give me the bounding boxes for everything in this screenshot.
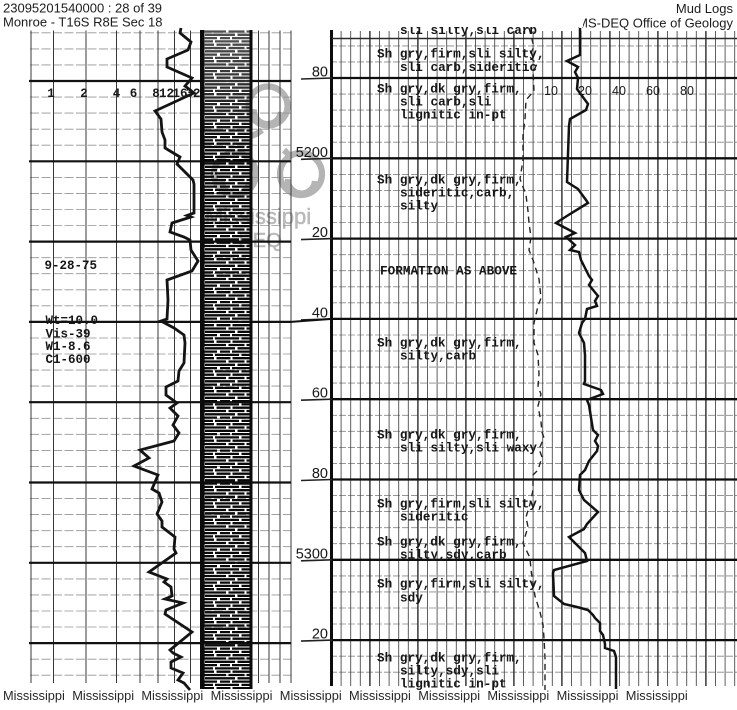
svg-text:6: 6	[130, 87, 138, 101]
svg-text:40: 40	[312, 305, 328, 321]
svg-text:32: 32	[185, 87, 200, 101]
svg-text:80: 80	[312, 65, 328, 81]
svg-text:Mississippi: Mississippi	[280, 688, 342, 703]
svg-text:Mississippi: Mississippi	[72, 688, 134, 703]
svg-text:Mississippi: Mississippi	[626, 688, 688, 703]
svg-text:Mississippi: Mississippi	[211, 688, 273, 703]
svg-text:sli silty,sli waxy: sli silty,sli waxy	[400, 441, 537, 456]
svg-text:40: 40	[612, 84, 626, 98]
svg-text:60: 60	[646, 84, 660, 98]
svg-text:23095201540000 : 28 of 39: 23095201540000 : 28 of 39	[3, 1, 162, 16]
svg-text:sli carb,sideritic: sli carb,sideritic	[400, 60, 537, 75]
svg-text:Mississippi: Mississippi	[557, 688, 619, 703]
svg-text:60: 60	[312, 386, 328, 402]
svg-text:Monroe - T16S R8E Sec 18: Monroe - T16S R8E Sec 18	[3, 15, 162, 30]
svg-text:Mississippi: Mississippi	[418, 688, 480, 703]
svg-text:80: 80	[680, 84, 694, 98]
svg-text:Mississippi: Mississippi	[349, 688, 411, 703]
svg-text:80: 80	[312, 466, 328, 482]
svg-text:20: 20	[312, 225, 328, 241]
svg-text:10: 10	[544, 84, 558, 98]
svg-text:lignitic in-pt: lignitic in-pt	[400, 108, 507, 123]
svg-text:FORMATION AS ABOVE: FORMATION AS ABOVE	[380, 264, 517, 279]
svg-text:sideritic: sideritic	[400, 510, 469, 525]
svg-text:9-28-75: 9-28-75	[45, 259, 98, 273]
svg-text:Mud Logs: Mud Logs	[676, 1, 734, 16]
svg-text:silty,carb: silty,carb	[400, 349, 477, 364]
svg-text:C1-600: C1-600	[46, 353, 91, 367]
svg-text:Mississippi: Mississippi	[141, 688, 203, 703]
svg-text:20: 20	[312, 627, 328, 643]
svg-text:Mississippi: Mississippi	[487, 688, 549, 703]
svg-text:20: 20	[578, 84, 592, 98]
svg-text:silty: silty	[400, 199, 438, 214]
svg-text:2: 2	[80, 87, 88, 101]
svg-text:silty,sdy,carb: silty,sdy,carb	[400, 548, 507, 563]
svg-text:1: 1	[47, 87, 55, 101]
svg-text:4: 4	[113, 87, 121, 101]
svg-text:Sh gry,firm,sli silty,: Sh gry,firm,sli silty,	[377, 577, 545, 592]
svg-text:MS-DEQ Office of Geology: MS-DEQ Office of Geology	[577, 15, 733, 30]
svg-text:sdy: sdy	[400, 591, 423, 606]
svg-text:5200: 5200	[296, 145, 328, 161]
svg-text:Wt=10.0: Wt=10.0	[46, 314, 99, 328]
svg-text:5300: 5300	[296, 546, 328, 562]
svg-text:Mississippi: Mississippi	[3, 688, 65, 703]
svg-text:W1-8.6: W1-8.6	[46, 340, 91, 354]
